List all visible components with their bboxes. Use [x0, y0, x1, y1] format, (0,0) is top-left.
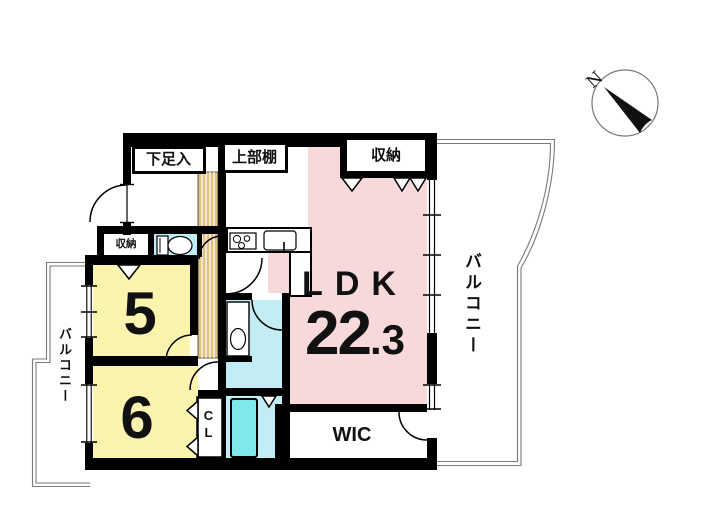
shoe-cabinet-label: 下足入: [133, 152, 204, 167]
corridor-wood-strip: [198, 172, 218, 358]
ldk-area-int: 22: [305, 299, 370, 368]
floorplan-canvas: 下足入 上部棚 収納 収納 LDK 22.3 5 6 WIC CL バルコニー …: [0, 0, 705, 525]
washbasin: [227, 302, 249, 356]
front-door-arc: [90, 185, 127, 222]
ldk-area: 22.3: [270, 303, 440, 365]
upper-shelf-label: 上部棚: [223, 150, 286, 165]
wic-label: WIC: [300, 425, 404, 445]
storage-hall-label: 収納: [104, 239, 148, 250]
ldk-label: LDK: [275, 267, 435, 301]
storage-top-label: 収納: [345, 148, 427, 163]
bedroom6-label: 6: [92, 388, 182, 448]
sink: [264, 231, 296, 250]
toilet: [157, 236, 192, 255]
balcony-left-label: バルコニー: [58, 327, 71, 405]
bedroom5-label: 5: [95, 284, 185, 344]
balcony-right-outline: [437, 140, 555, 466]
balcony-right-outline-inner: [437, 144, 551, 462]
ldk-area-frac: .3: [370, 316, 405, 363]
balcony-right-label: バルコニー: [463, 252, 480, 357]
compass-needle: [604, 87, 652, 133]
closet-label: CL: [202, 408, 215, 442]
bathtub: [231, 399, 257, 457]
